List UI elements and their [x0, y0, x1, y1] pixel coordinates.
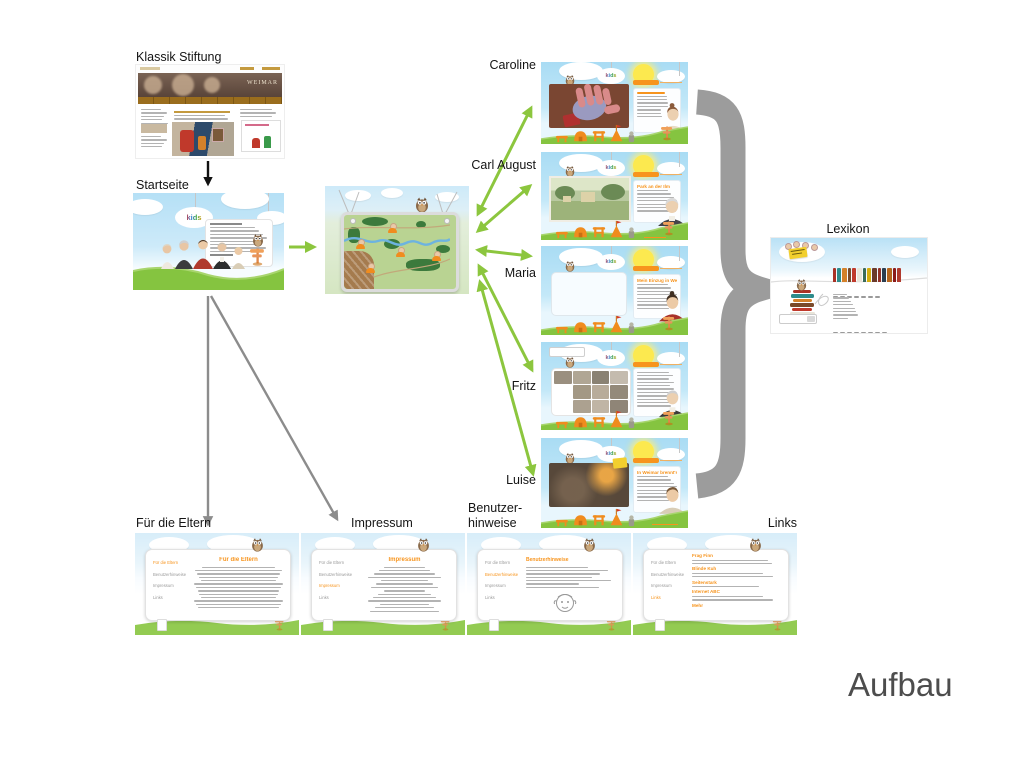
menu-item: Für die Eltern: [153, 560, 189, 565]
owl-mascot: [252, 233, 264, 247]
footer-link-stub: [644, 237, 666, 238]
weimar-logo-text: WEIMAR: [247, 80, 278, 86]
page-title-bar: [633, 458, 659, 463]
figures-group: [159, 237, 251, 269]
menu-item: Links: [153, 595, 189, 600]
thumb-page-caroline: kids: [541, 62, 688, 144]
kids-logo: kids: [186, 213, 201, 222]
link-heading: Blinde Kuh: [692, 566, 781, 572]
thumb-page-impressum: Für die Eltern Benutzerhinweise Impressu…: [301, 533, 465, 635]
label-maria: Maria: [430, 266, 536, 281]
blank-panel: [551, 272, 627, 316]
page-title-bar: [633, 362, 659, 367]
menu-item: Benutzerhinweise: [651, 572, 687, 577]
thumb-page-carl-august: kids Park an der Ilm: [541, 152, 688, 240]
page-title-bar: [633, 172, 659, 177]
kids-logo-cloud: kids: [597, 254, 625, 270]
label-fuer-die-eltern: Für die Eltern: [136, 516, 211, 531]
alphabet-row-bottom: [833, 324, 889, 334]
bookshelf: [833, 264, 902, 286]
more-link: Mehr: [692, 603, 781, 609]
grass-items: [553, 220, 639, 240]
signpost: [660, 124, 674, 141]
label-impressum: Impressum: [351, 516, 413, 531]
label-fritz: Fritz: [430, 379, 536, 394]
kids-logo-cloud: kids: [597, 160, 625, 176]
fire-painting-panel: [549, 463, 629, 507]
thumb-klassik-stiftung-website: WEIMAR: [135, 64, 285, 159]
illegible-heading: [637, 92, 665, 94]
aufbau-sitemap-diagram: Klassik Stiftung Startseite Caroline Car…: [0, 0, 1024, 768]
brace-pages-to-lexikon: [697, 102, 759, 486]
kids-logo-cloud: kids: [597, 350, 625, 366]
owl: [417, 537, 430, 552]
face-doodle: [552, 591, 578, 614]
owl: [583, 537, 596, 552]
map-character: [356, 239, 365, 249]
park-painting-panel: [549, 176, 631, 222]
thumb-page-links: Für die Eltern Benutzerhinweise Impressu…: [633, 533, 797, 635]
sticky-note: [613, 457, 628, 468]
klassik-content: [138, 106, 282, 156]
menu-item: Benutzerhinweise: [153, 572, 189, 577]
link-heading: Seitenstark: [692, 580, 781, 586]
label-startseite: Startseite: [136, 178, 189, 193]
owl: [565, 356, 575, 368]
menu-item: Links: [319, 595, 355, 600]
signpost: [662, 314, 676, 331]
thumb-page-maria: kids Mein Einzug in Weimar: [541, 246, 688, 335]
paper-tag: [489, 619, 499, 631]
menu-item: Benutzerhinweise: [319, 572, 355, 577]
owl-on-books: [796, 278, 807, 291]
menu-item: Impressum: [153, 583, 189, 588]
link-heading: Internet ABC: [692, 589, 781, 595]
menu-item: Für die Eltern: [319, 560, 355, 565]
painted-hand-panel: [549, 84, 629, 128]
menu-item: Impressum: [319, 583, 355, 588]
grass-items: [553, 124, 639, 144]
label-caroline: Caroline: [430, 58, 536, 73]
page-title-bar: [633, 266, 659, 271]
link-heading: Frag Finn: [692, 553, 781, 559]
paper-tag: [655, 619, 665, 631]
page-title: Impressum: [360, 557, 449, 564]
menu-item: Impressum: [651, 583, 687, 588]
page-title: Benutzerhinweise: [526, 557, 615, 564]
menu-item: Für die Eltern: [485, 560, 521, 565]
klassik-topbar: [136, 65, 284, 73]
page-title: Für die Eltern: [194, 557, 283, 564]
arrow-map-maria: [478, 250, 530, 256]
word-list: [833, 294, 859, 321]
signpost: [249, 245, 266, 267]
label-carl-august: Carl August: [430, 158, 536, 173]
arrow-map-fritz: [479, 266, 532, 370]
owl: [749, 537, 762, 552]
thumb-page-fritz: kids: [541, 342, 688, 430]
arrow-map-carl-august: [478, 186, 530, 231]
label-klassik-stiftung: Klassik Stiftung: [136, 50, 221, 65]
footer-menu: Für die Eltern Benutzerhinweise Impressu…: [651, 560, 687, 606]
klassik-banner: WEIMAR: [138, 73, 282, 97]
menu-item: Links: [651, 595, 687, 600]
footer-menu: Für die Eltern Benutzerhinweise Impressu…: [485, 560, 521, 606]
thumb-startseite: kids: [133, 193, 284, 290]
kids-logo-cloud: kids: [597, 68, 625, 84]
menu-item: Links: [485, 595, 521, 600]
owl: [251, 537, 264, 552]
thumb-page-benutzerhinweise: Für die Eltern Benutzerhinweise Impressu…: [467, 533, 631, 635]
page-heading: In Weimar brennt's: [637, 470, 677, 475]
signpost: [662, 409, 676, 426]
map-character: [396, 247, 405, 257]
page-title-bar: [633, 80, 659, 85]
menu-item: Impressum: [485, 583, 521, 588]
menu-item: Für die Eltern: [651, 560, 687, 565]
label-lexikon: Lexikon: [770, 222, 926, 237]
thumb-page-luise: kids In Weimar brennt's: [541, 438, 688, 528]
page-heading: Mein Einzug in Weimar: [637, 278, 677, 283]
map-character: [388, 223, 397, 233]
footer-menu: Für die Eltern Benutzerhinweise Impressu…: [319, 560, 355, 606]
footer-link-stub: [652, 524, 678, 525]
map-character: [432, 251, 441, 261]
grass-items: [553, 410, 639, 430]
diagram-title: Aufbau: [848, 666, 953, 704]
label-luise: Luise: [430, 473, 536, 488]
grass-items: [553, 315, 639, 335]
signpost: [662, 219, 676, 236]
footer-menu: Für die Eltern Benutzerhinweise Impressu…: [153, 560, 189, 606]
paper-tag: [323, 619, 333, 631]
klassik-ad-box: [241, 120, 281, 152]
arrow-startseite-to-impressum: [211, 296, 337, 519]
thumb-lexikon: [770, 237, 928, 334]
lexikon-search-box: [779, 314, 817, 324]
page-heading: Park an der Ilm: [637, 184, 677, 189]
thumb-page-fuer-die-eltern: Für die Eltern Benutzerhinweise Impressu…: [135, 533, 299, 635]
owl-peeking: [415, 196, 429, 213]
owl: [565, 260, 575, 272]
klassik-navbar: [138, 97, 282, 104]
puzzle-panel: [551, 368, 631, 416]
menu-item: Benutzerhinweise: [485, 572, 521, 577]
map-character: [366, 263, 375, 273]
klassik-photo: [172, 122, 234, 156]
label-benutzerhinweise: Benutzer- hinweise: [468, 501, 522, 531]
arrow-map-luise: [480, 282, 533, 474]
label-links: Links: [733, 516, 797, 531]
grass-items: [553, 508, 639, 528]
paper-tag: [157, 619, 167, 631]
